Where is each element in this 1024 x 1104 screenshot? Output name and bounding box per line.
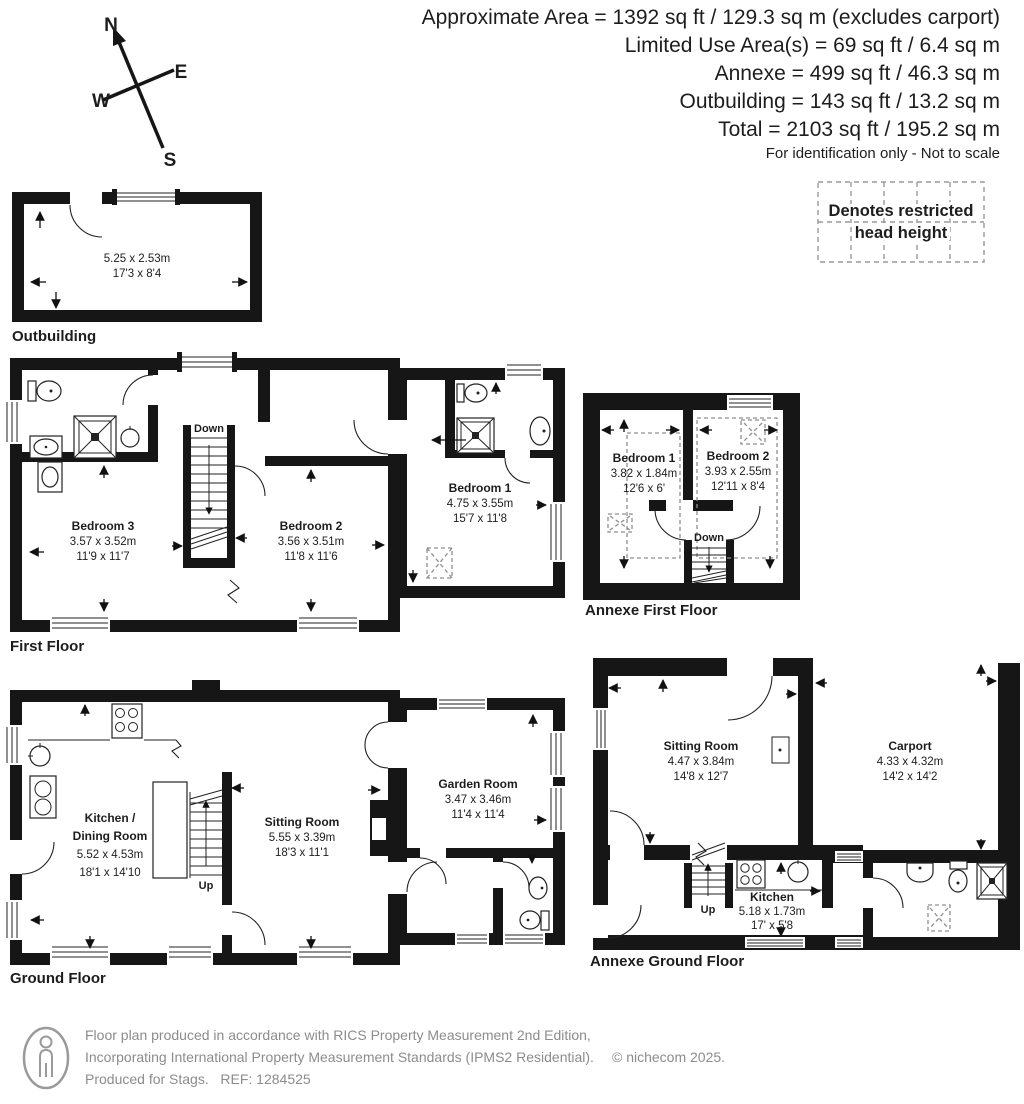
- shower-icon: [457, 418, 494, 453]
- annexe-bedroom1-name: Bedroom 1: [613, 451, 676, 465]
- compass-south-label: S: [164, 150, 177, 171]
- annexe-kitchen-dims-metric: 5.18 x 1.73m: [739, 906, 805, 918]
- sitting-room-dims-metric: 5.55 x 3.39m: [269, 832, 335, 844]
- sitting-room-name: Sitting Room: [265, 815, 340, 829]
- bedroom1-dims-imperial: 15'7 x 11'8: [453, 513, 507, 525]
- annexe-sitting-room-dims-metric: 4.47 x 3.84m: [668, 756, 734, 768]
- stairs-label: Up: [701, 904, 716, 916]
- toilet-icon: [949, 861, 967, 892]
- annexe-bedroom1-dims-imperial: 12'6 x 6': [623, 483, 665, 495]
- window: [112, 189, 180, 205]
- door-opening: [70, 192, 102, 205]
- compass-west-label: W: [92, 91, 110, 112]
- sink-icon: [529, 877, 547, 899]
- window: [727, 395, 773, 411]
- ground-floor-label: Ground Floor: [10, 970, 106, 987]
- area-line-limited-use: Limited Use Area(s) = 69 sq ft / 6.4 sq …: [625, 34, 1000, 57]
- compass-rose-icon: N E W S: [92, 15, 187, 171]
- annexe-kitchen-dims-imperial: 17' x 5'8: [751, 920, 793, 932]
- toilet-icon: [457, 384, 487, 402]
- compass-north-label: N: [104, 15, 118, 36]
- legend-dashed-grid: [818, 182, 984, 262]
- footer-copyright: © nichecom 2025.: [612, 1049, 725, 1065]
- annexe-first-floor-plan: Down Bedroom 1 3.82 x 1.84m 12'6 x 6' Be…: [583, 393, 800, 619]
- kitchen-dining-name-line2: Dining Room: [73, 829, 148, 843]
- outbuilding-dims-metric: 5.25 x 2.53m: [104, 253, 170, 265]
- disclaimer-text: For identification only - Not to scale: [766, 145, 1000, 162]
- bedroom3-dims-imperial: 11'9 x 11'7: [76, 551, 129, 563]
- kitchen-dining-dims-metric: 5.52 x 4.53m: [77, 849, 143, 861]
- footer-line2: Incorporating International Property Mea…: [85, 1049, 594, 1065]
- bedroom2-name: Bedroom 2: [280, 519, 343, 533]
- annexe-bedroom1-dims-metric: 3.82 x 1.84m: [611, 468, 677, 480]
- annexe-first-floor-label: Annexe First Floor: [585, 602, 718, 619]
- outbuilding-dims-imperial: 17'3 x 8'4: [113, 268, 162, 280]
- stairs-label: Down: [194, 423, 224, 435]
- bedroom1-dims-metric: 4.75 x 3.55m: [447, 498, 513, 510]
- annexe-bedroom2-dims-metric: 3.93 x 2.55m: [705, 466, 771, 478]
- outbuilding-label: Outbuilding: [12, 328, 96, 345]
- shower-icon: [977, 863, 1007, 899]
- annexe-ground-floor-plan: Up: [590, 658, 1020, 970]
- annexe-kitchen-name: Kitchen: [750, 890, 794, 904]
- footer-line1: Floor plan produced in accordance with R…: [85, 1027, 591, 1043]
- annexe-bedroom2-dims-imperial: 12'11 x 8'4: [711, 481, 766, 493]
- bedroom2-dims-imperial: 11'8 x 11'6: [284, 551, 337, 563]
- annexe-sitting-room-name: Sitting Room: [664, 739, 739, 753]
- legend-line1: Denotes restricted: [829, 202, 974, 220]
- oven-icon: [30, 776, 56, 818]
- carport-dims-imperial: 14'2 x 14'2: [883, 771, 938, 783]
- floorplan-page: N E W S Approximate Area = 1392 sq ft / …: [0, 0, 1024, 1104]
- kitchen-dining-name-line1: Kitchen /: [85, 811, 136, 825]
- annexe-sitting-room-dims-imperial: 14'8 x 12'7: [674, 771, 729, 783]
- outbuilding-plan: 5.25 x 2.53m 17'3 x 8'4 Outbuilding: [12, 189, 262, 345]
- stairs-label: Up: [199, 880, 214, 892]
- annexe-ground-floor-label: Annexe Ground Floor: [590, 953, 744, 970]
- compass-east-label: E: [175, 62, 188, 83]
- person-scale-icon: [24, 1028, 68, 1088]
- garden-room-dims-metric: 3.47 x 3.46m: [445, 794, 511, 806]
- footer-line3: Produced for Stags. REF: 1284525: [85, 1071, 311, 1087]
- area-line-approximate: Approximate Area = 1392 sq ft / 129.3 sq…: [422, 6, 1000, 29]
- bedroom3-dims-metric: 3.57 x 3.52m: [70, 536, 136, 548]
- toilet-icon: [28, 381, 61, 401]
- bedroom2-dims-metric: 3.56 x 3.51m: [278, 536, 344, 548]
- first-floor-label: First Floor: [10, 638, 84, 655]
- ground-floor-plan: Up: [2, 680, 565, 987]
- area-line-outbuilding: Outbuilding = 143 sq ft / 13.2 sq m: [680, 90, 1000, 113]
- bedroom1-name: Bedroom 1: [449, 481, 512, 495]
- sink-icon: [907, 863, 933, 882]
- area-line-annexe: Annexe = 499 sq ft / 46.3 sq m: [715, 62, 1000, 85]
- carport-dims-metric: 4.33 x 4.32m: [877, 756, 943, 768]
- stairs-label: Down: [694, 532, 724, 544]
- garden-room-dims-imperial: 11'4 x 11'4: [451, 809, 505, 821]
- sink-icon: [530, 417, 550, 445]
- first-floor-plan: Down Bedroom 3 3.57 x 3.52m 11: [2, 352, 565, 655]
- bedroom3-name: Bedroom 3: [72, 519, 135, 533]
- sitting-room-dims-imperial: 18'3 x 11'1: [275, 847, 329, 859]
- floorplan-canvas: N E W S Approximate Area = 1392 sq ft / …: [0, 0, 1024, 1104]
- area-summary: Approximate Area = 1392 sq ft / 129.3 sq…: [422, 6, 1000, 162]
- kitchen-dining-dims-imperial: 18'1 x 14'10: [79, 867, 140, 879]
- shower-icon: [74, 416, 116, 458]
- carport-name: Carport: [888, 739, 931, 753]
- area-line-total: Total = 2103 sq ft / 195.2 sq m: [718, 118, 1000, 141]
- hob-icon: [112, 704, 142, 738]
- garden-room-name: Garden Room: [438, 777, 517, 791]
- legend-line2: head height: [855, 224, 948, 242]
- restricted-head-height-legend: Denotes restricted head height: [818, 182, 984, 262]
- toilet-icon: [520, 911, 549, 930]
- footer: Floor plan produced in accordance with R…: [24, 1027, 725, 1088]
- annexe-bedroom2-name: Bedroom 2: [707, 449, 770, 463]
- sink-icon: [30, 436, 62, 458]
- hob-icon: [737, 860, 765, 888]
- vanity-sink-icon: [38, 462, 62, 492]
